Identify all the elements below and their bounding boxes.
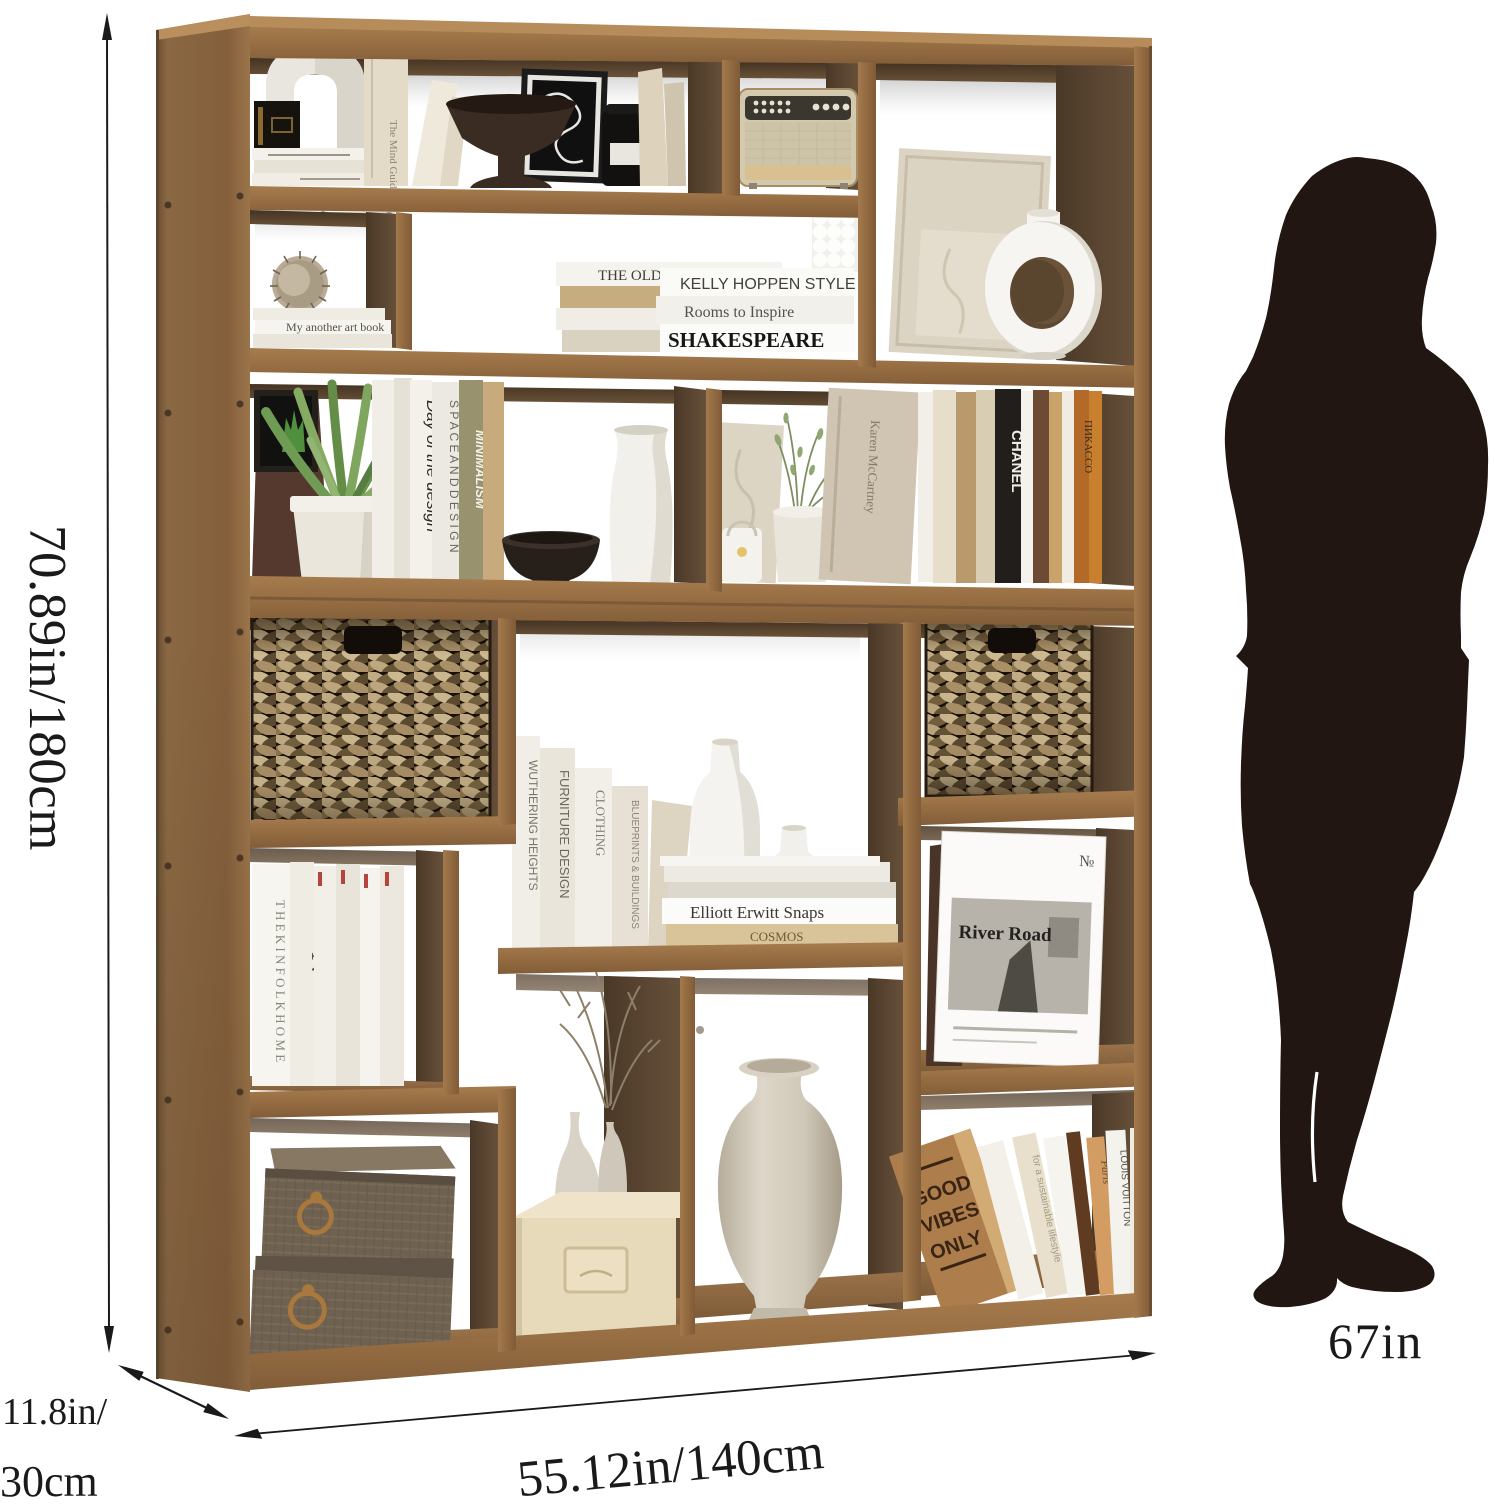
svg-text:BLUEPRINTS & BUILDINGS: BLUEPRINTS & BUILDINGS	[629, 800, 640, 929]
svg-text:FURNITURE DESIGN: FURNITURE DESIGN	[557, 770, 572, 899]
svg-text:The Mind Guide: The Mind Guide	[387, 120, 399, 193]
svg-text:KELLY HOPPEN STYLE: KELLY HOPPEN STYLE	[680, 276, 855, 293]
svg-text:11.8in/: 11.8in/	[2, 1391, 108, 1433]
svg-text:Elliott Erwitt Snaps: Elliott Erwitt Snaps	[690, 903, 824, 922]
svg-text:ПИКАССО: ПИКАССО	[1082, 420, 1094, 473]
svg-text:Rooms to Inspire: Rooms to Inspire	[684, 304, 794, 321]
svg-text:My another art book: My another art book	[286, 320, 384, 334]
svg-text:№: №	[1079, 853, 1095, 871]
svg-text:T H E K I N F O L K H O M: T H E K I N F O L K H O M E	[273, 900, 288, 1062]
svg-text:WUTHERING HEIGHTS: WUTHERING HEIGHTS	[526, 760, 540, 891]
svg-text:COSMOS: COSMOS	[750, 929, 803, 944]
svg-text:SHAKESPEARE: SHAKESPEARE	[668, 328, 824, 352]
svg-text:River Road: River Road	[958, 922, 1052, 946]
svg-text:S P A C E A N D D E S I G N: S P A C E A N D D E S I G N	[447, 400, 461, 553]
svg-text:70.89in/180cm: 70.89in/180cm	[18, 525, 76, 851]
svg-text:67in: 67in	[1328, 1313, 1423, 1369]
svg-text:CLOTHING: CLOTHING	[593, 790, 608, 856]
svg-text:30cm: 30cm	[0, 1457, 98, 1500]
